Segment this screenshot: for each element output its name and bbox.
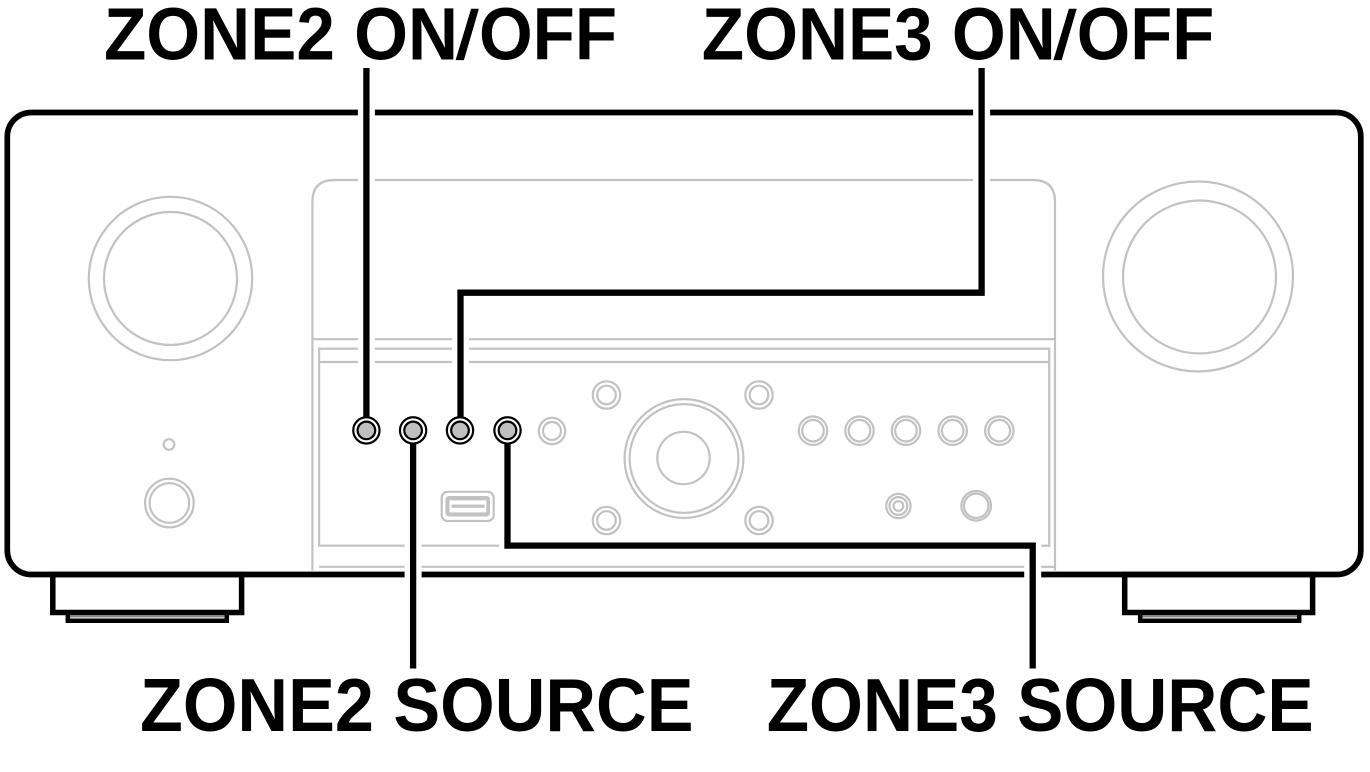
svg-text:ZONE2 SOURCE: ZONE2 SOURCE xyxy=(140,663,694,747)
svg-text:ZONE2 ON: ZONE2 ON xyxy=(104,0,458,76)
svg-text:ZONE3 ON: ZONE3 ON xyxy=(702,0,1056,76)
svg-text:ZONE3 SOURCE: ZONE3 SOURCE xyxy=(767,663,1314,747)
svg-text:OFF: OFF xyxy=(1077,0,1215,76)
svg-text:OFF: OFF xyxy=(479,0,617,76)
